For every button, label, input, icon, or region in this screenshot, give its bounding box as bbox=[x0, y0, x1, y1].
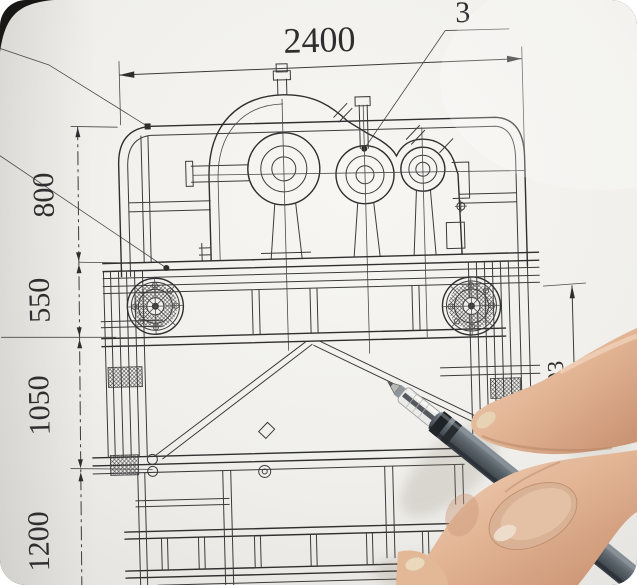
dimension-550: 550 bbox=[23, 277, 57, 323]
photo-canvas: 2400 3 2 bbox=[0, 0, 637, 585]
dimension-2400: 2400 bbox=[283, 19, 356, 61]
dimension-1050: 1050 bbox=[22, 375, 57, 436]
dimension-800: 800 bbox=[27, 172, 61, 218]
dimension-1200: 1200 bbox=[22, 511, 57, 572]
blueprint-photo: 2400 3 2 bbox=[0, 0, 637, 585]
right-bearing-wheel bbox=[442, 276, 501, 335]
left-bearing-wheel bbox=[127, 278, 184, 335]
